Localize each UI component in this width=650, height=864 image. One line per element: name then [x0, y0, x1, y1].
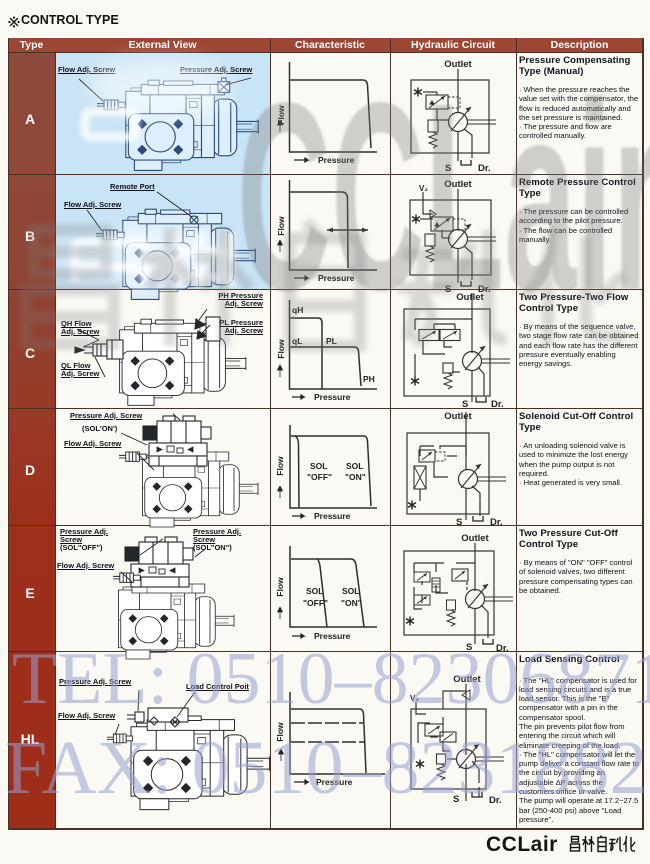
svg-text:TEL: 0510–82306871: TEL: 0510–82306871	[12, 638, 650, 720]
svg-text:FAX: 0510–82318821: FAX: 0510–82318821	[5, 726, 650, 810]
